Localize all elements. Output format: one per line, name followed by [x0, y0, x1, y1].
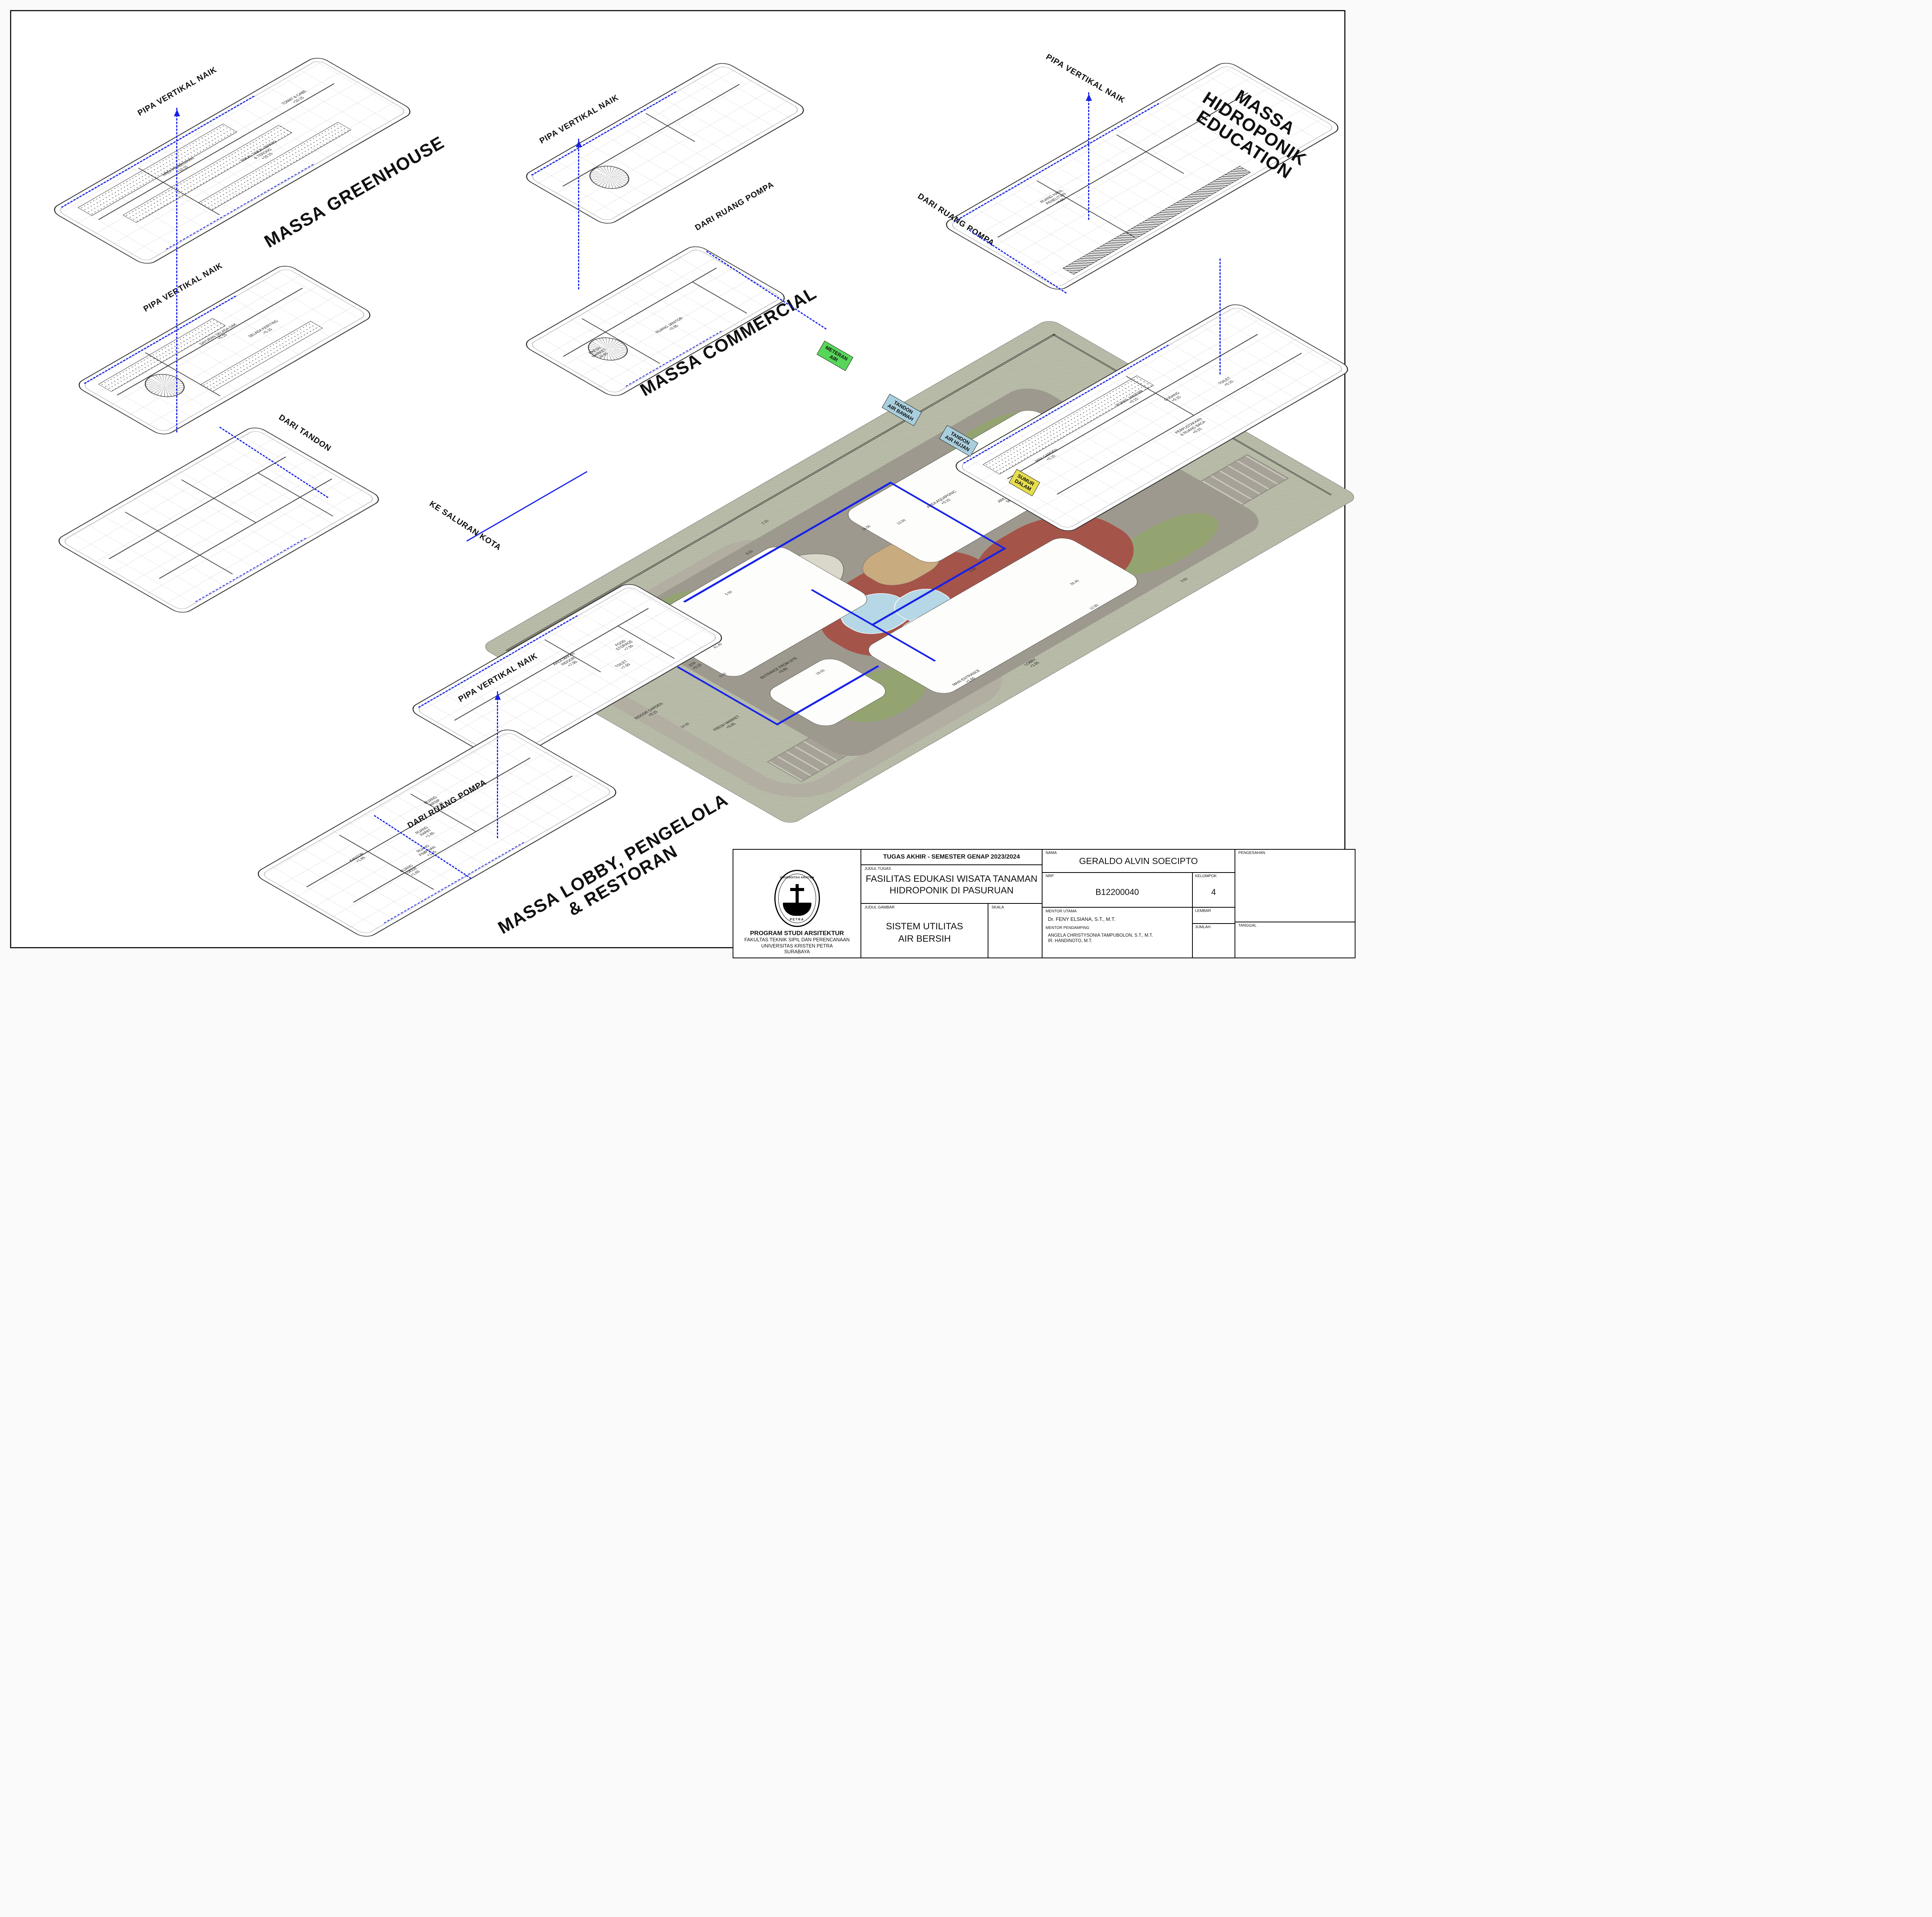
floor-plan-greenhouse-mid: SAYURAN SELADA OAK +5.15SELADA KERITING …: [73, 263, 376, 437]
logo-text-bottom: PETRA: [776, 918, 819, 921]
pipe-line: [497, 691, 498, 838]
project-title-line2: HIDROPONIK DI PASURUAN: [864, 885, 1039, 896]
dimension-label: 14.00: [679, 722, 690, 729]
room-label: TOILET +7.00: [614, 660, 634, 671]
pipe-annotation: PIPA VERTIKAL NAIK: [1044, 53, 1126, 105]
dimension-label: 16.50: [861, 524, 872, 531]
lembar-cell: LEMBAR: [1193, 908, 1235, 923]
room-labels: AREA PEMBENIHAN +10.15TIMUN, TIMUN JEPAN…: [50, 56, 415, 266]
dimension-label: 9.80: [968, 567, 978, 573]
jumlah-label: JUMLAH: [1195, 925, 1232, 929]
room-labels: SAYURAN SELADA OAK +5.15SELADA KERITING …: [75, 264, 374, 437]
room-label: MINI GARDEN +0.15: [1034, 448, 1064, 465]
room-label: AREA MAKAN INDOOR +7.00: [552, 652, 585, 671]
judul-tugas-cell: JUDUL TUGAS FASILITAS EDUKASI WISATA TAN…: [861, 865, 1042, 904]
room-labels: [54, 425, 383, 615]
room-label: GUDANG +0.15: [1163, 391, 1186, 404]
dimension-label: 13.50: [896, 519, 907, 525]
project-title-line1: FASILITAS EDUKASI WISATA TANAMAN: [864, 873, 1039, 885]
room-label: RUANG HASIL PENELITIAN +4.65: [1039, 189, 1074, 209]
faculty-name: FAKULTAS TEKNIK SIPIL DAN PERENCANAAN: [744, 937, 850, 943]
kelompok-number: 4: [1195, 878, 1232, 906]
kelompok-label: KELOMPOK: [1195, 874, 1232, 878]
jumlah-cell: JUMLAH: [1193, 923, 1235, 958]
dimension-label: 9.00: [718, 672, 728, 678]
mentor-utama-name: Dr. FENY ELSIANA, S.T., M.T.: [1048, 916, 1189, 922]
nrp-cell: NRP B12200040: [1043, 873, 1192, 907]
floor-plan-greenhouse-upper: AREA PEMBENIHAN +10.15TIMUN, TIMUN JEPAN…: [49, 55, 416, 267]
kelompok-cell: KELOMPOK 4: [1192, 873, 1235, 907]
dimension-label: 8.50: [745, 549, 754, 555]
project-header: TUGAS AKHIR - SEMESTER GENAP 2023/2024: [861, 850, 1042, 865]
architecture-sheet: { "colors":{"pipe_blue":"#1722e8","callo…: [0, 0, 1355, 958]
room-label: FOOD STORAGE +7.00: [611, 638, 639, 654]
mentor-cell: MENTOR UTAMA Dr. FENY ELSIANA, S.T., M.T…: [1043, 908, 1192, 958]
approval-column: PENGESAHAN TANGGAL: [1235, 850, 1355, 958]
pipe-line: [1088, 92, 1089, 220]
pipe-line: [578, 139, 579, 289]
room-label: RUANG JANITOR +0.15: [1115, 390, 1149, 410]
room-label: RUANG JANITOR +0.65: [655, 317, 689, 337]
program-name: PROGRAM STUDI ARSITEKTUR: [750, 930, 844, 937]
site-callout: METERAN AIR: [816, 341, 853, 371]
room-label: TOMAT & CABE +10.15: [281, 90, 313, 108]
lembar-label: LEMBAR: [1195, 909, 1232, 913]
city-name: SURABAYA: [784, 949, 810, 955]
pipe-line: [466, 471, 587, 542]
student-column: NAMA GERALDO ALVIN SOECIPTO NRP B1220004…: [1042, 850, 1235, 958]
pengesahan-cell: PENGESAHAN: [1235, 850, 1355, 922]
judul-gambar-cell: JUDUL GAMBAR SISTEM UTILITAS AIR BERSIH: [861, 904, 988, 958]
dimension-label: 3.50: [1179, 577, 1189, 583]
floor-plan-commercial-upper: [520, 60, 809, 226]
room-label: KANTOR +1.65: [349, 852, 370, 865]
cross-icon: [790, 888, 804, 891]
dimension-label: 12.80: [1088, 604, 1100, 610]
skala-cell: SKALA: [988, 904, 1042, 958]
dimension-label: 19.00: [815, 669, 826, 675]
student-nrp: B12200040: [1046, 878, 1189, 906]
nrp-label: NRP: [1046, 874, 1189, 878]
logo-text-top: UNIVERSITAS KRISTEN: [776, 876, 819, 879]
tanggal-cell: TANGGAL: [1235, 922, 1355, 958]
room-labels: [522, 61, 808, 226]
room-label: RUANG LOKER +1.65: [399, 864, 423, 878]
dimension-label: 2.20: [760, 519, 770, 525]
room-label: RUANG RAPAT +1.65: [414, 826, 438, 840]
nama-cell: NAMA GERALDO ALVIN SOECIPTO: [1043, 850, 1235, 873]
cross-icon: [796, 884, 799, 904]
mentor-pendamping-label: MENTOR PENDAMPING: [1046, 926, 1189, 930]
floor-plan-greenhouse-ground: [53, 425, 384, 616]
student-name: GERALDO ALVIN SOECIPTO: [1046, 856, 1231, 866]
room-label: SELADA KERITING +5.15: [248, 320, 284, 341]
university-logo-icon: UNIVERSITAS KRISTEN PETRA: [774, 870, 820, 927]
pengesahan-label: PENGESAHAN: [1238, 851, 1352, 855]
room-label: FRESH MARKET +0.65: [587, 346, 612, 361]
drawing-title-line1: SISTEM UTILITAS: [886, 920, 963, 933]
room-label: SAYURAN SELADA OAK +5.15: [199, 323, 243, 349]
room-label: TIMUN, TIMUN JEPANG & TERONG +10.15: [239, 140, 287, 168]
institution-cell: UNIVERSITAS KRISTEN PETRA PROGRAM STUDI …: [733, 850, 861, 958]
nama-label: NAMA: [1046, 851, 1231, 855]
title-block: UNIVERSITAS KRISTEN PETRA PROGRAM STUDI …: [733, 849, 1355, 958]
tanggal-label: TANGGAL: [1238, 924, 1352, 928]
university-name: UNIVERSITAS KRISTEN PETRA: [761, 943, 833, 949]
pipe-annotation: DARI RUANG POMPA: [694, 180, 776, 233]
dimension-label: 5.50: [724, 590, 733, 596]
drawing-title-line2: AIR BERSIH: [898, 933, 951, 945]
skala-label: SKALA: [992, 905, 1039, 910]
judul-gambar-label: JUDUL GAMBAR: [864, 905, 985, 910]
mentor-utama-label: MENTOR UTAMA: [1046, 909, 1189, 913]
mentor-pendamping-name-2: IR. HANDINOTO, M.T.: [1048, 939, 1189, 943]
room-label: PERPUSTAKAAN & RUANG BACA +0.15: [1174, 417, 1213, 439]
pipe-line: [176, 108, 177, 432]
sheet-border-frame: RUANG TRAFO +0.15RUANG PLN +0.15RUANG GE…: [10, 10, 1345, 948]
project-column: TUGAS AKHIR - SEMESTER GENAP 2023/2024 J…: [861, 850, 1042, 958]
judul-tugas-label: JUDUL TUGAS: [864, 867, 1039, 871]
dimension-label: 28.40: [1069, 579, 1080, 586]
pipe-line: [1219, 259, 1221, 374]
mentor-pendamping-name-1: ANGELA CHRISTYSONIA TAMPUBOLON, S.T., M.…: [1048, 933, 1189, 938]
room-label: TOILET +0.15: [1217, 377, 1237, 388]
room-label: AREA PEMBENIHAN +10.15: [162, 157, 200, 179]
